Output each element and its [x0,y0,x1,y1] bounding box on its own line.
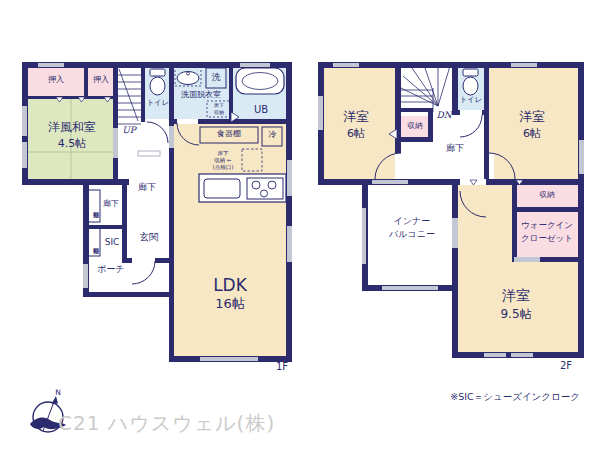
f2-rouka-label: 廊下 [438,144,472,154]
company-watermark: C21 ハウスウェル(株) [58,412,318,434]
f1-shokkidana-label: 食器棚 [202,130,256,139]
f2-toilet-tank-icon [463,69,478,76]
f1-washitsu-name: 洋風和室 [26,121,118,134]
f1-washer-label: 洗 [208,73,224,83]
f1-ub-label: UB [244,104,278,115]
f2-room-a-name: 洋室 [330,110,382,124]
f1-fridge-label: 冷 [264,131,281,140]
f2-toilet-label: トイレ [456,96,486,104]
f1-senmen-label: 洗面脱衣室 [172,91,230,100]
f1-rouka-small-label: 廊下 [98,200,124,209]
f1-rouka-label: 廊下 [130,183,164,193]
f1-ps-label: PS [178,63,198,71]
f2-dn-label: DN [432,111,456,121]
f2-room-c-name: 洋室 [490,288,542,303]
f1-toilet-tank-icon [150,69,165,76]
f2-balcony-line2: バルコニー [374,230,450,240]
f1-kadoudana-b-label: 可動棚 [89,229,99,257]
compass-n-label: N [52,389,64,397]
f2-floor-label: 2F [554,360,578,371]
f2-room-b-size: 6帖 [506,128,558,140]
sic-footnote: ※SIC＝シューズインクローク [408,392,580,402]
f2-closet-stairs-label: 収納 [400,122,430,130]
f1-yukashita-k2: 収納 ← [204,157,242,163]
f1-up-label: UP [116,126,142,136]
f2-balcony-line1: インナー [380,217,444,227]
floorplan-canvas: 押入 押入 洋風和室 4.5帖 UP トイレ PS 洗 洗面脱衣室 床下 収納 … [0,0,600,450]
f2-wic-line2: クローゼット [514,234,580,243]
f1-hall-niche [138,151,160,156]
f2-wic-line1: ウォークイン [514,221,580,230]
f1-oshiire-b-label: 押入 [86,76,116,85]
f2-room-a-size: 6帖 [330,128,382,140]
f1-yukashita-k1: 床下 [206,150,240,156]
f1-yukashita-line2: 収納 [209,110,229,116]
f1-ldk-name: LDK [190,276,270,295]
f1-sic-label: SIC [99,238,125,248]
f1-toilet-bowl-icon [150,77,165,95]
f1-yukashita-k3: (点検口) [202,164,244,170]
f1-floor-label: 1F [270,361,294,372]
f1-ldk-size: 16帖 [190,297,270,311]
f2-room-c-size: 9.5帖 [488,308,544,321]
f1-kitchen-sink [204,179,240,198]
f2-room-b-name: 洋室 [506,110,558,124]
f1-kadoudana-a-label: 可動棚 [89,193,99,221]
f1-porch-label: ポーチ [92,265,130,275]
f2-toilet-bowl-icon [463,77,478,95]
f2-closet-right-label: 収納 [528,191,566,199]
f1-genkan-label: 玄関 [130,232,168,242]
f1-oshiire-a-label: 押入 [30,76,82,85]
floorplan-drawing [0,0,600,450]
f1-yukashita-line1: 床下 [209,103,229,109]
f1-washitsu-size: 4.5帖 [26,138,118,150]
f1-toilet-label: トイレ [143,99,173,107]
